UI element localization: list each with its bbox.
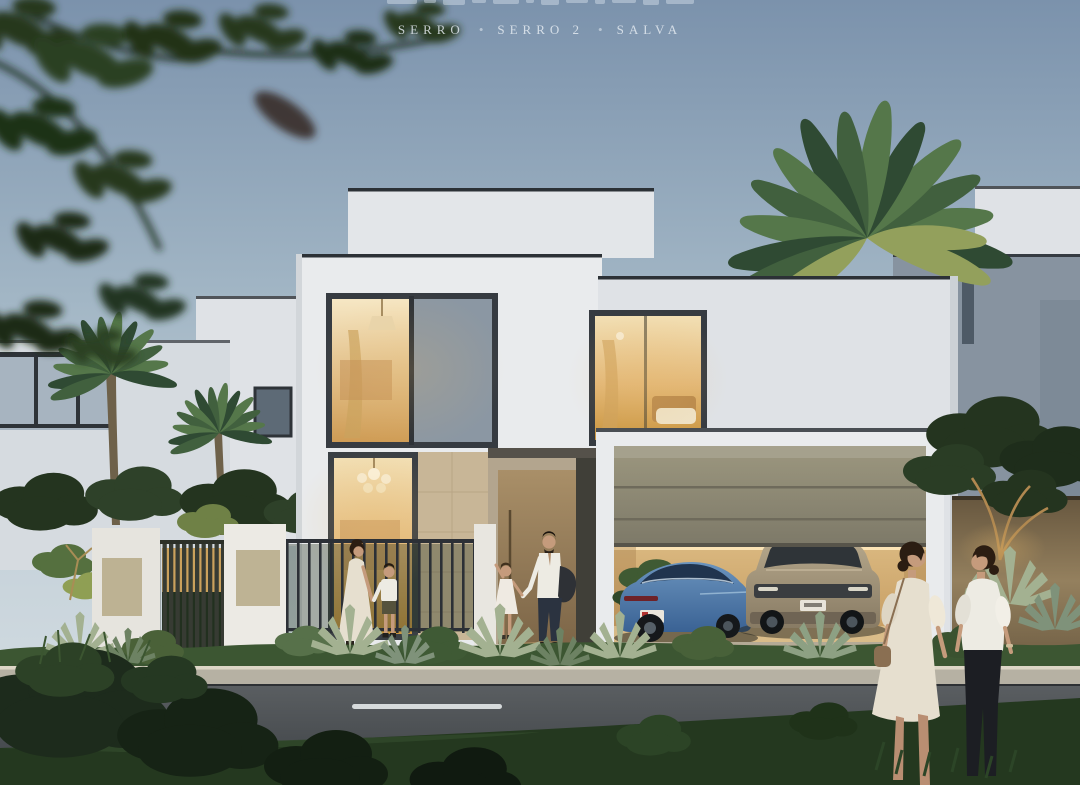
villa-hero-render: SERRO•SERRO 2•SALVA [0, 0, 1080, 785]
lane-marking [352, 704, 502, 709]
project-name-serro: SERRO [398, 22, 465, 37]
upper-left-window [315, 290, 505, 450]
project-name-salva: SALVA [617, 22, 682, 37]
scene-illustration [0, 0, 1080, 785]
roof-upper-volume [348, 188, 654, 258]
cropped-wordmark-fragment [0, 0, 1080, 7]
separator-dot: • [479, 22, 484, 38]
project-header: SERRO•SERRO 2•SALVA [0, 22, 1080, 38]
garage-door [614, 446, 926, 547]
project-name-serro2: SERRO 2 [497, 22, 584, 37]
separator-dot: • [598, 22, 603, 38]
